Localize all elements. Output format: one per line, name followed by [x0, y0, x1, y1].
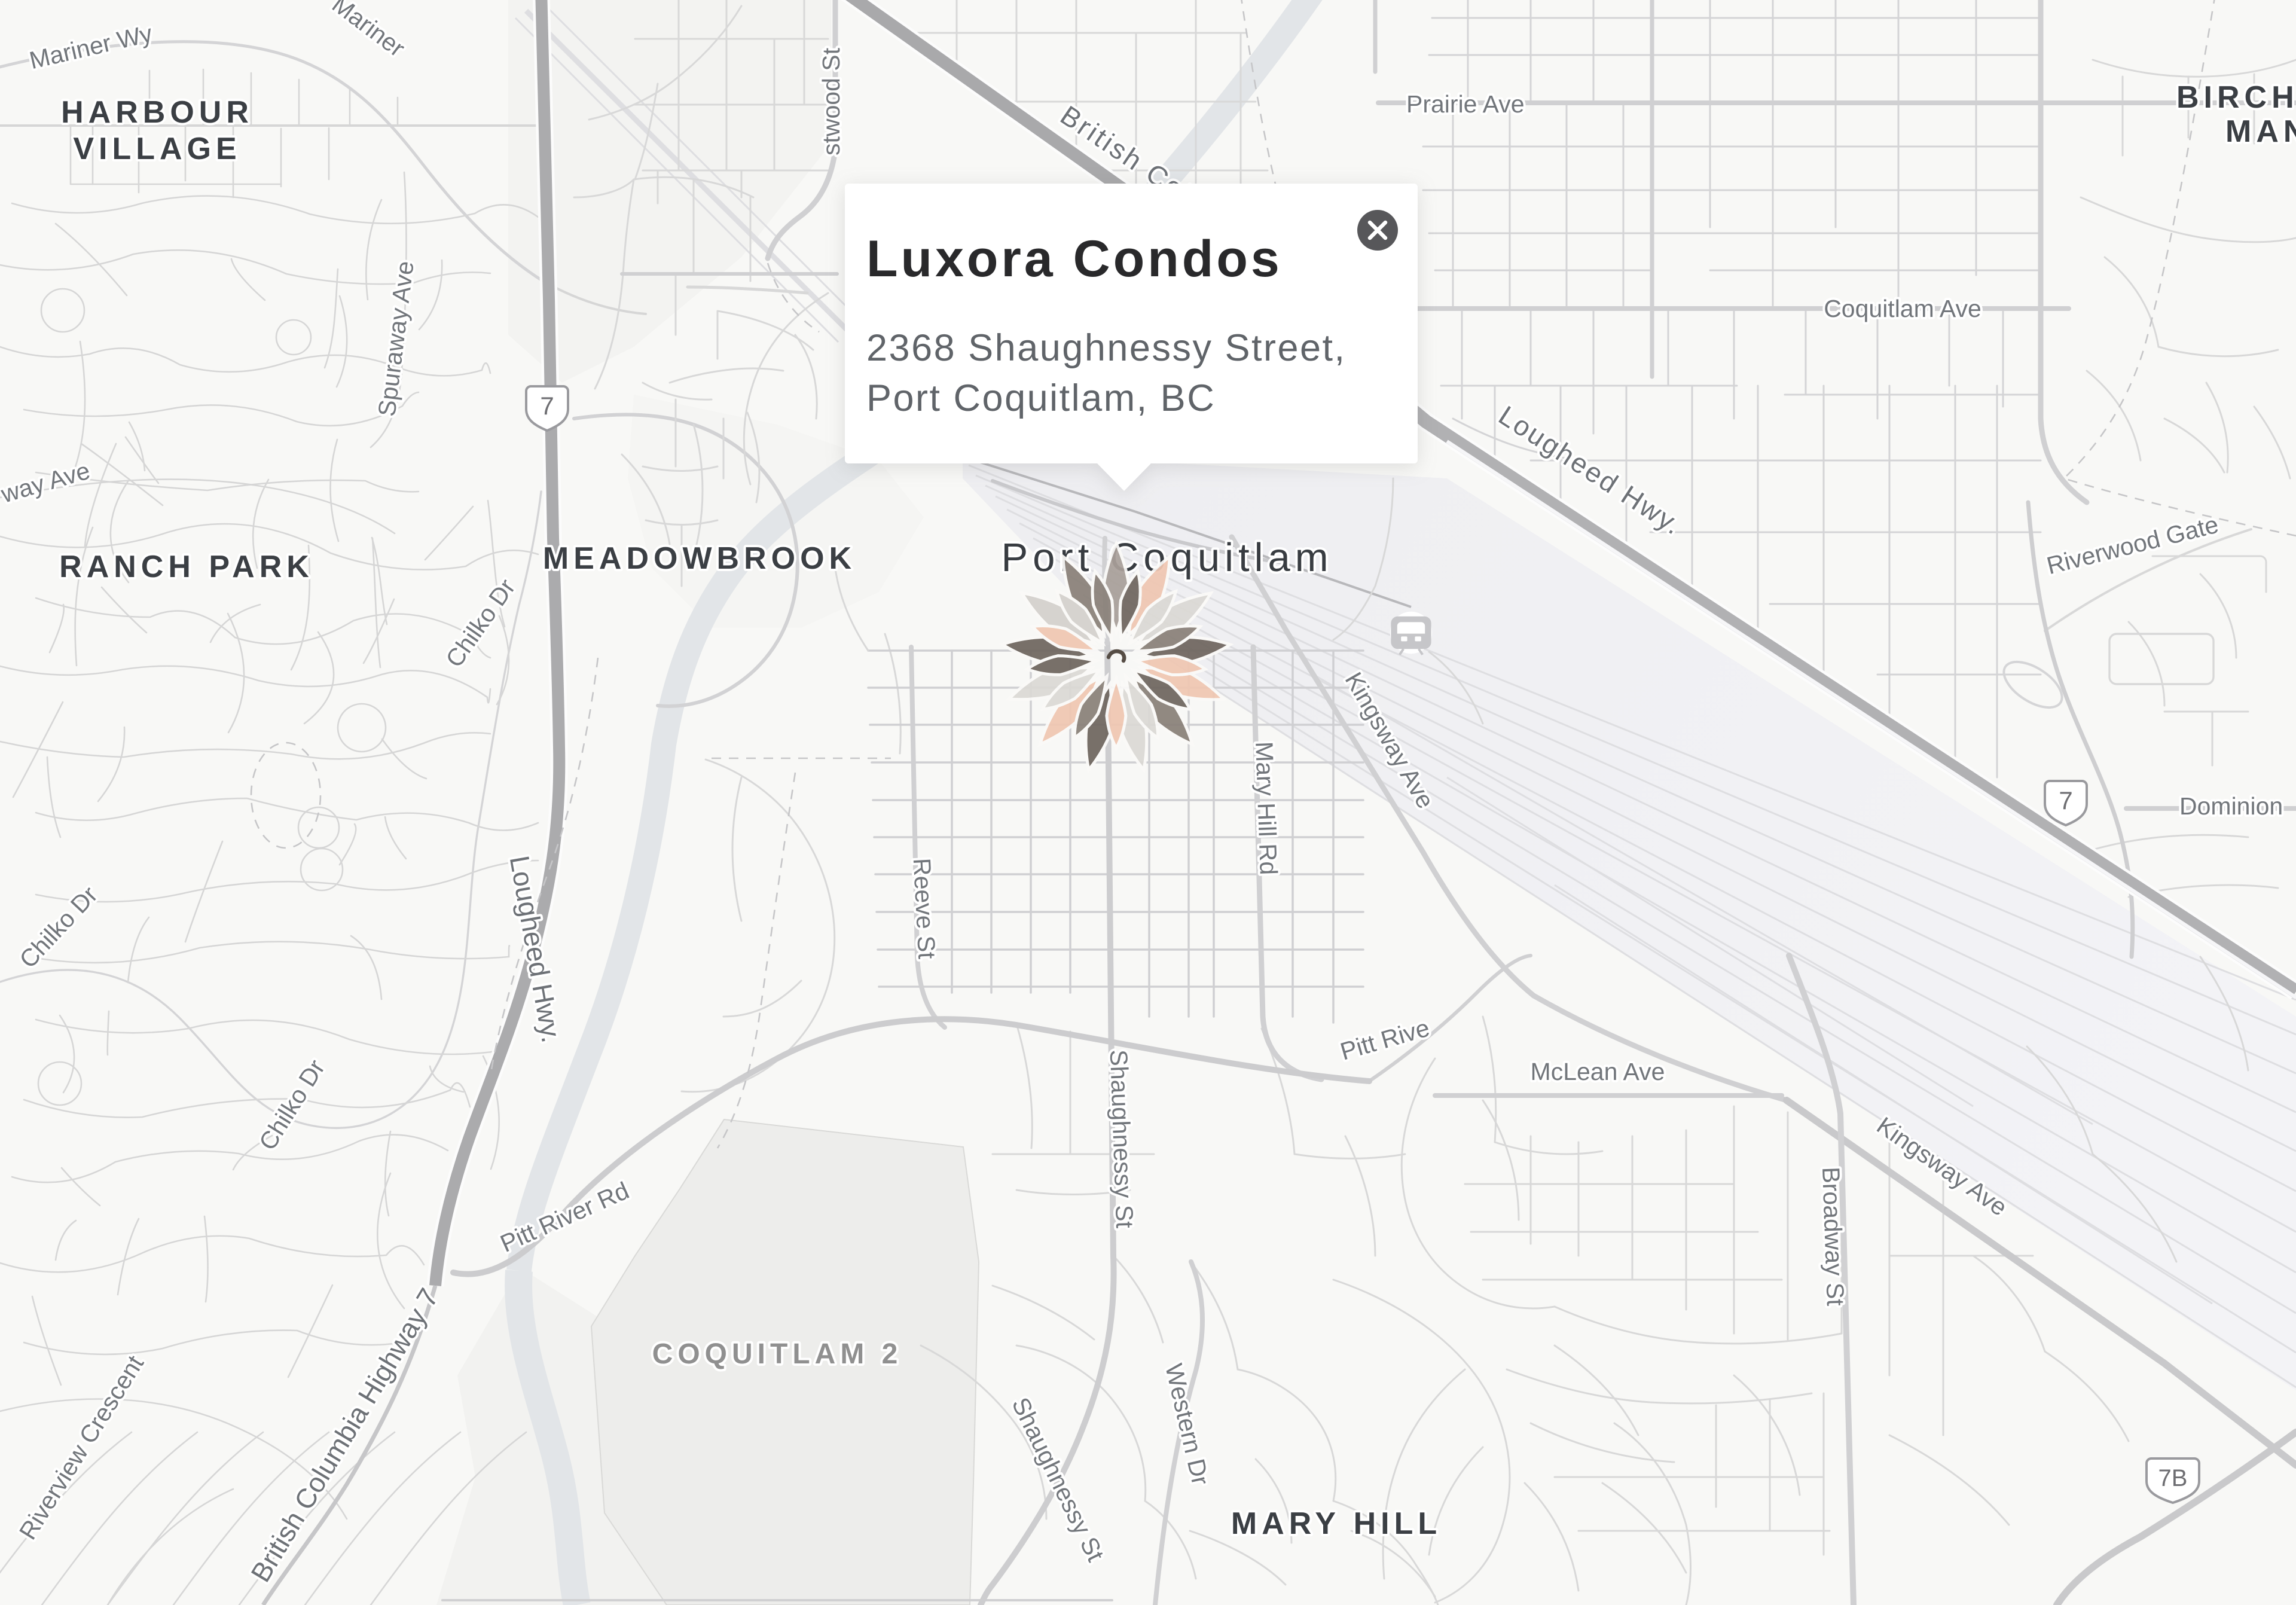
svg-text:MANOR: MANOR [2225, 114, 2296, 149]
svg-text:Coquitlam Ave: Coquitlam Ave [1824, 295, 1981, 322]
svg-text:Luxora Condos: Luxora Condos [866, 230, 1283, 288]
svg-text:MARY HILL: MARY HILL [1231, 1506, 1442, 1541]
svg-text:COQUITLAM 2: COQUITLAM 2 [652, 1338, 903, 1370]
svg-text:Dominion: Dominion [2179, 792, 2283, 820]
svg-text:MEADOWBROOK: MEADOWBROOK [543, 541, 856, 576]
svg-text:Mary Hill Rd: Mary Hill Rd [1250, 741, 1283, 875]
svg-text:RANCH PARK: RANCH PARK [59, 550, 314, 584]
svg-text:7: 7 [2059, 786, 2072, 814]
svg-text:Prairie Ave: Prairie Ave [1406, 90, 1525, 118]
svg-text:stwood St: stwood St [817, 47, 845, 155]
svg-text:VILLAGE: VILLAGE [73, 132, 241, 166]
svg-text:2368 Shaughnessy Street,: 2368 Shaughnessy Street, [866, 327, 1347, 369]
svg-text:HARBOUR: HARBOUR [61, 95, 254, 130]
svg-text:BIRCHLAND: BIRCHLAND [2176, 80, 2296, 115]
svg-text:7: 7 [540, 392, 554, 420]
svg-text:Reeve St: Reeve St [908, 858, 941, 960]
svg-text:Broadway St: Broadway St [1817, 1167, 1849, 1307]
svg-text:Port Coquitlam, BC: Port Coquitlam, BC [866, 377, 1216, 419]
svg-text:7B: 7B [2158, 1465, 2188, 1491]
svg-text:McLean Ave: McLean Ave [1531, 1058, 1665, 1085]
